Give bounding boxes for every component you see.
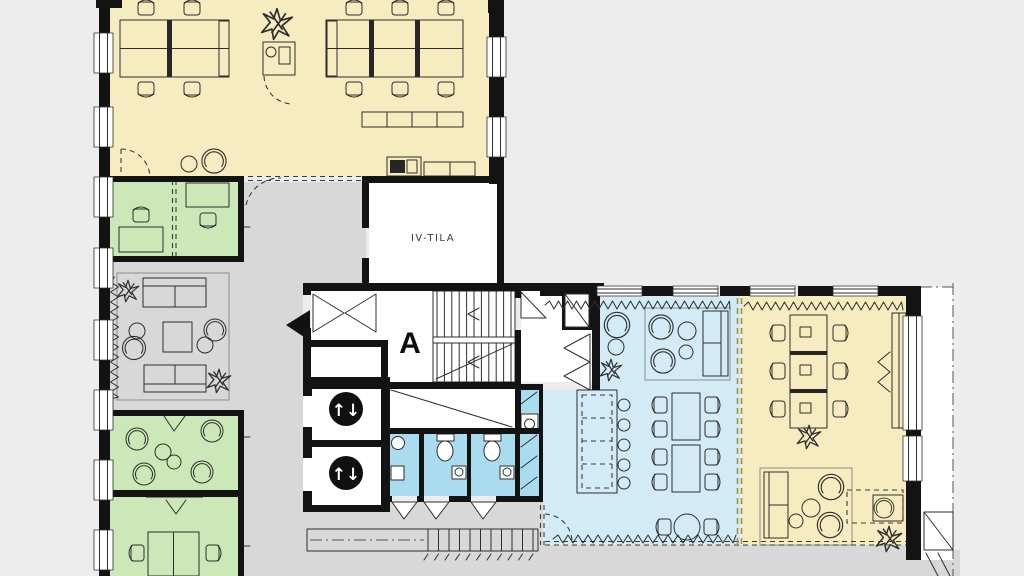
upper-corridor-floor — [244, 182, 366, 284]
toilet-icon — [484, 441, 500, 461]
open-office-east-floor — [742, 296, 906, 545]
open-office-north-floor — [104, 0, 489, 176]
stair-handrail — [433, 337, 515, 343]
toilet-icon — [437, 441, 453, 461]
elevator-2-door — [303, 458, 312, 491]
desk-cluster-2 — [326, 0, 463, 97]
elevator-2-arrows: ↑↓ — [332, 465, 361, 485]
floor-plan-page: ↑↓ ↑↓ IV-TILA A — [0, 0, 1024, 576]
elevator-1-arrows: ↑↓ — [332, 401, 361, 421]
east-windows — [903, 316, 922, 481]
mop-sink — [391, 466, 404, 480]
south-walkway — [244, 545, 920, 576]
storage-under-stairs-floor — [389, 389, 515, 434]
meeting-room-b-floor — [108, 416, 238, 490]
floor-plan-svg: ↑↓ ↑↓ IV-TILA A — [0, 0, 1024, 576]
ventilation-room-label: IV-TILA — [411, 233, 455, 244]
stair-core-label: A — [399, 327, 421, 360]
basin — [392, 437, 405, 450]
elevator-1-door — [303, 396, 312, 427]
